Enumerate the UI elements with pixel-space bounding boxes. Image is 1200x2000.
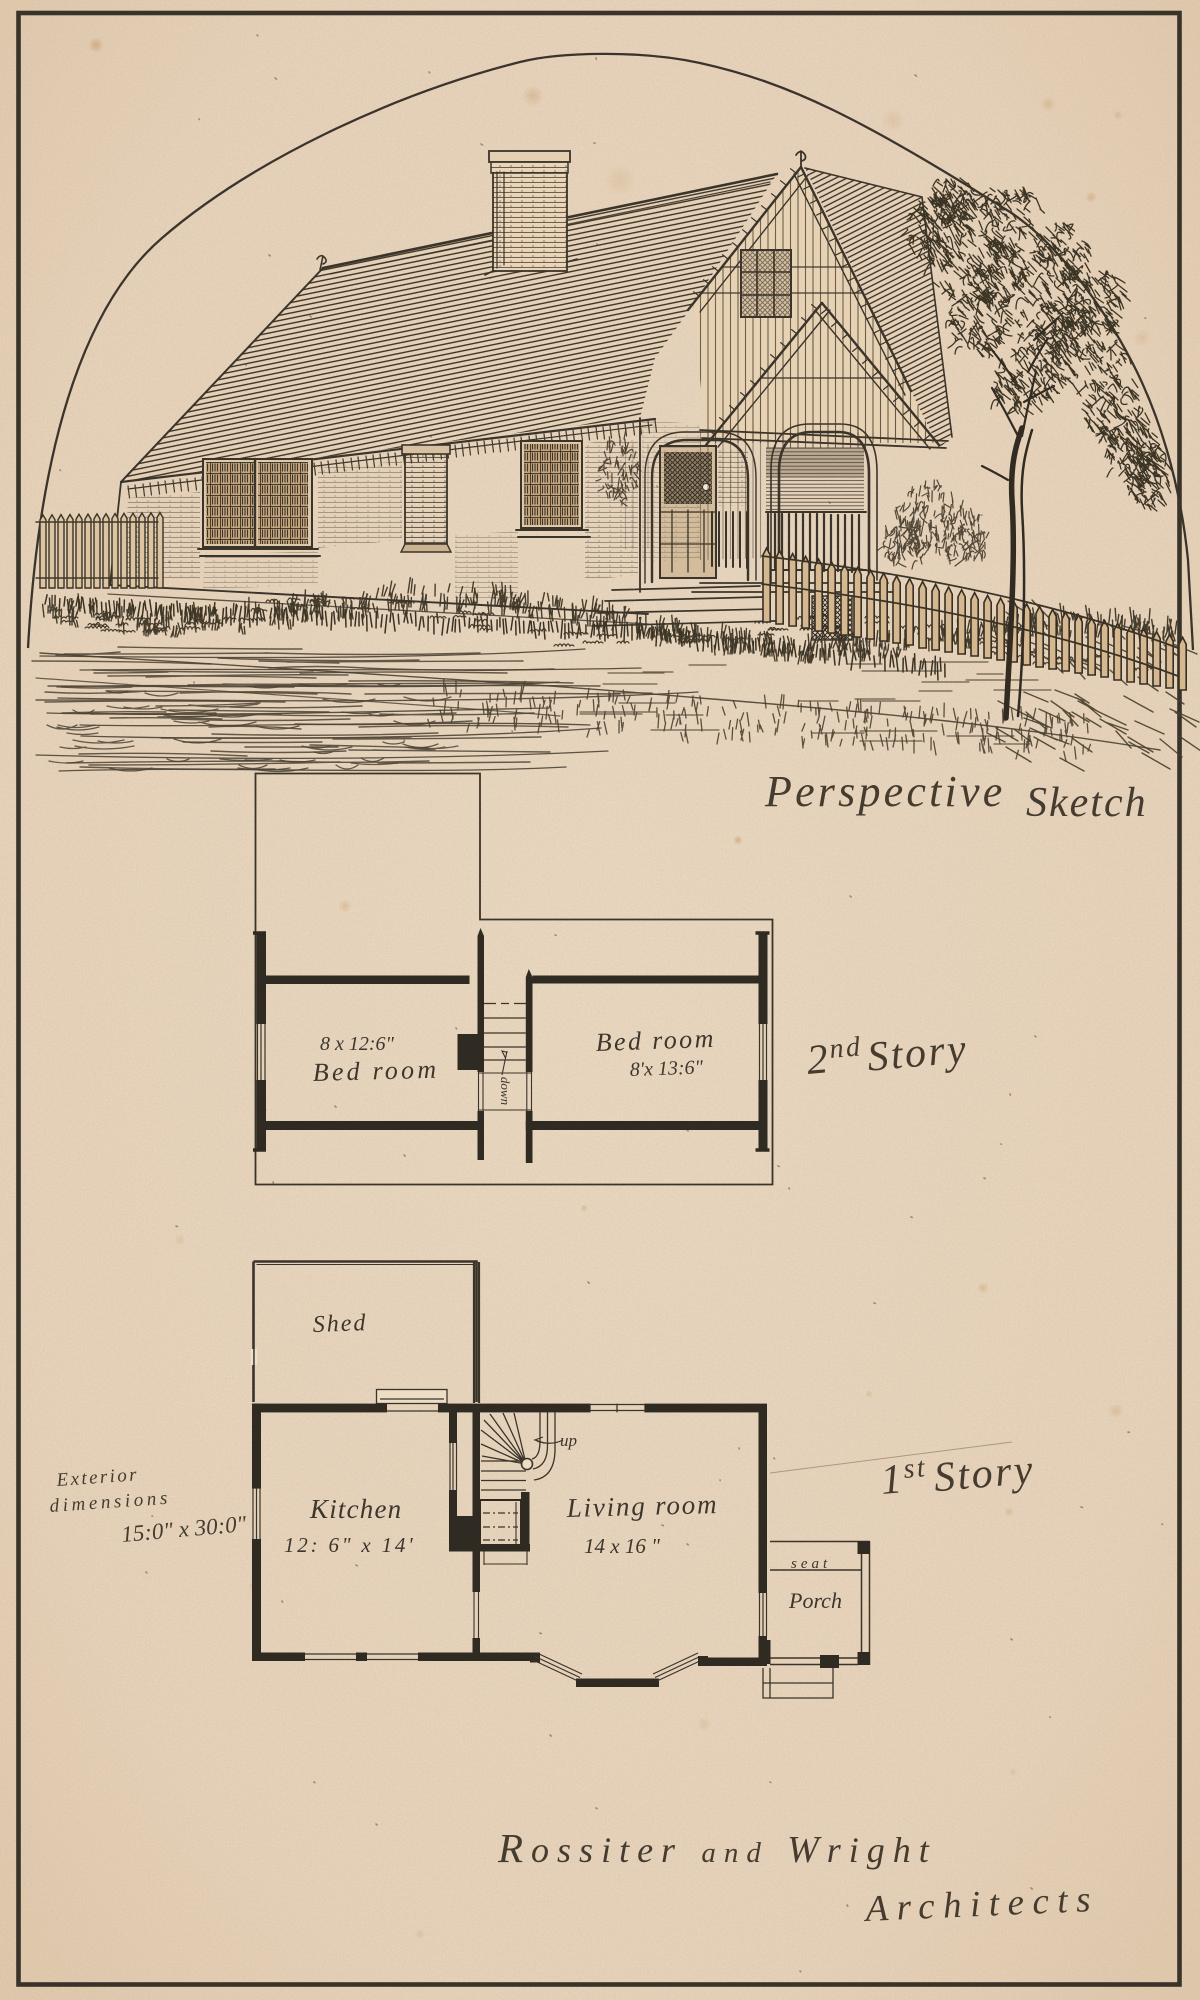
svg-text:8 x 12:6": 8 x 12:6" <box>320 1033 395 1055</box>
svg-text:14 x 16 ": 14 x 16 " <box>584 1534 660 1558</box>
svg-text:Kitchen: Kitchen <box>309 1494 402 1524</box>
svg-text:Perspective: Perspective <box>764 767 1005 816</box>
svg-text:12: 6" x 14': 12: 6" x 14' <box>284 1533 415 1557</box>
svg-text:8'x 13:6": 8'x 13:6" <box>629 1056 704 1081</box>
svg-text:Bed room: Bed room <box>312 1055 439 1087</box>
svg-text:Porch: Porch <box>788 1588 842 1613</box>
svg-text:Bed room: Bed room <box>595 1024 716 1057</box>
svg-text:Shed: Shed <box>312 1310 368 1338</box>
svg-text:down: down <box>498 1077 513 1105</box>
svg-text:Living room: Living room <box>565 1489 718 1523</box>
svg-text:up: up <box>560 1431 577 1450</box>
svg-text:seat: seat <box>791 1556 831 1572</box>
svg-text:Sketch: Sketch <box>1026 780 1148 826</box>
